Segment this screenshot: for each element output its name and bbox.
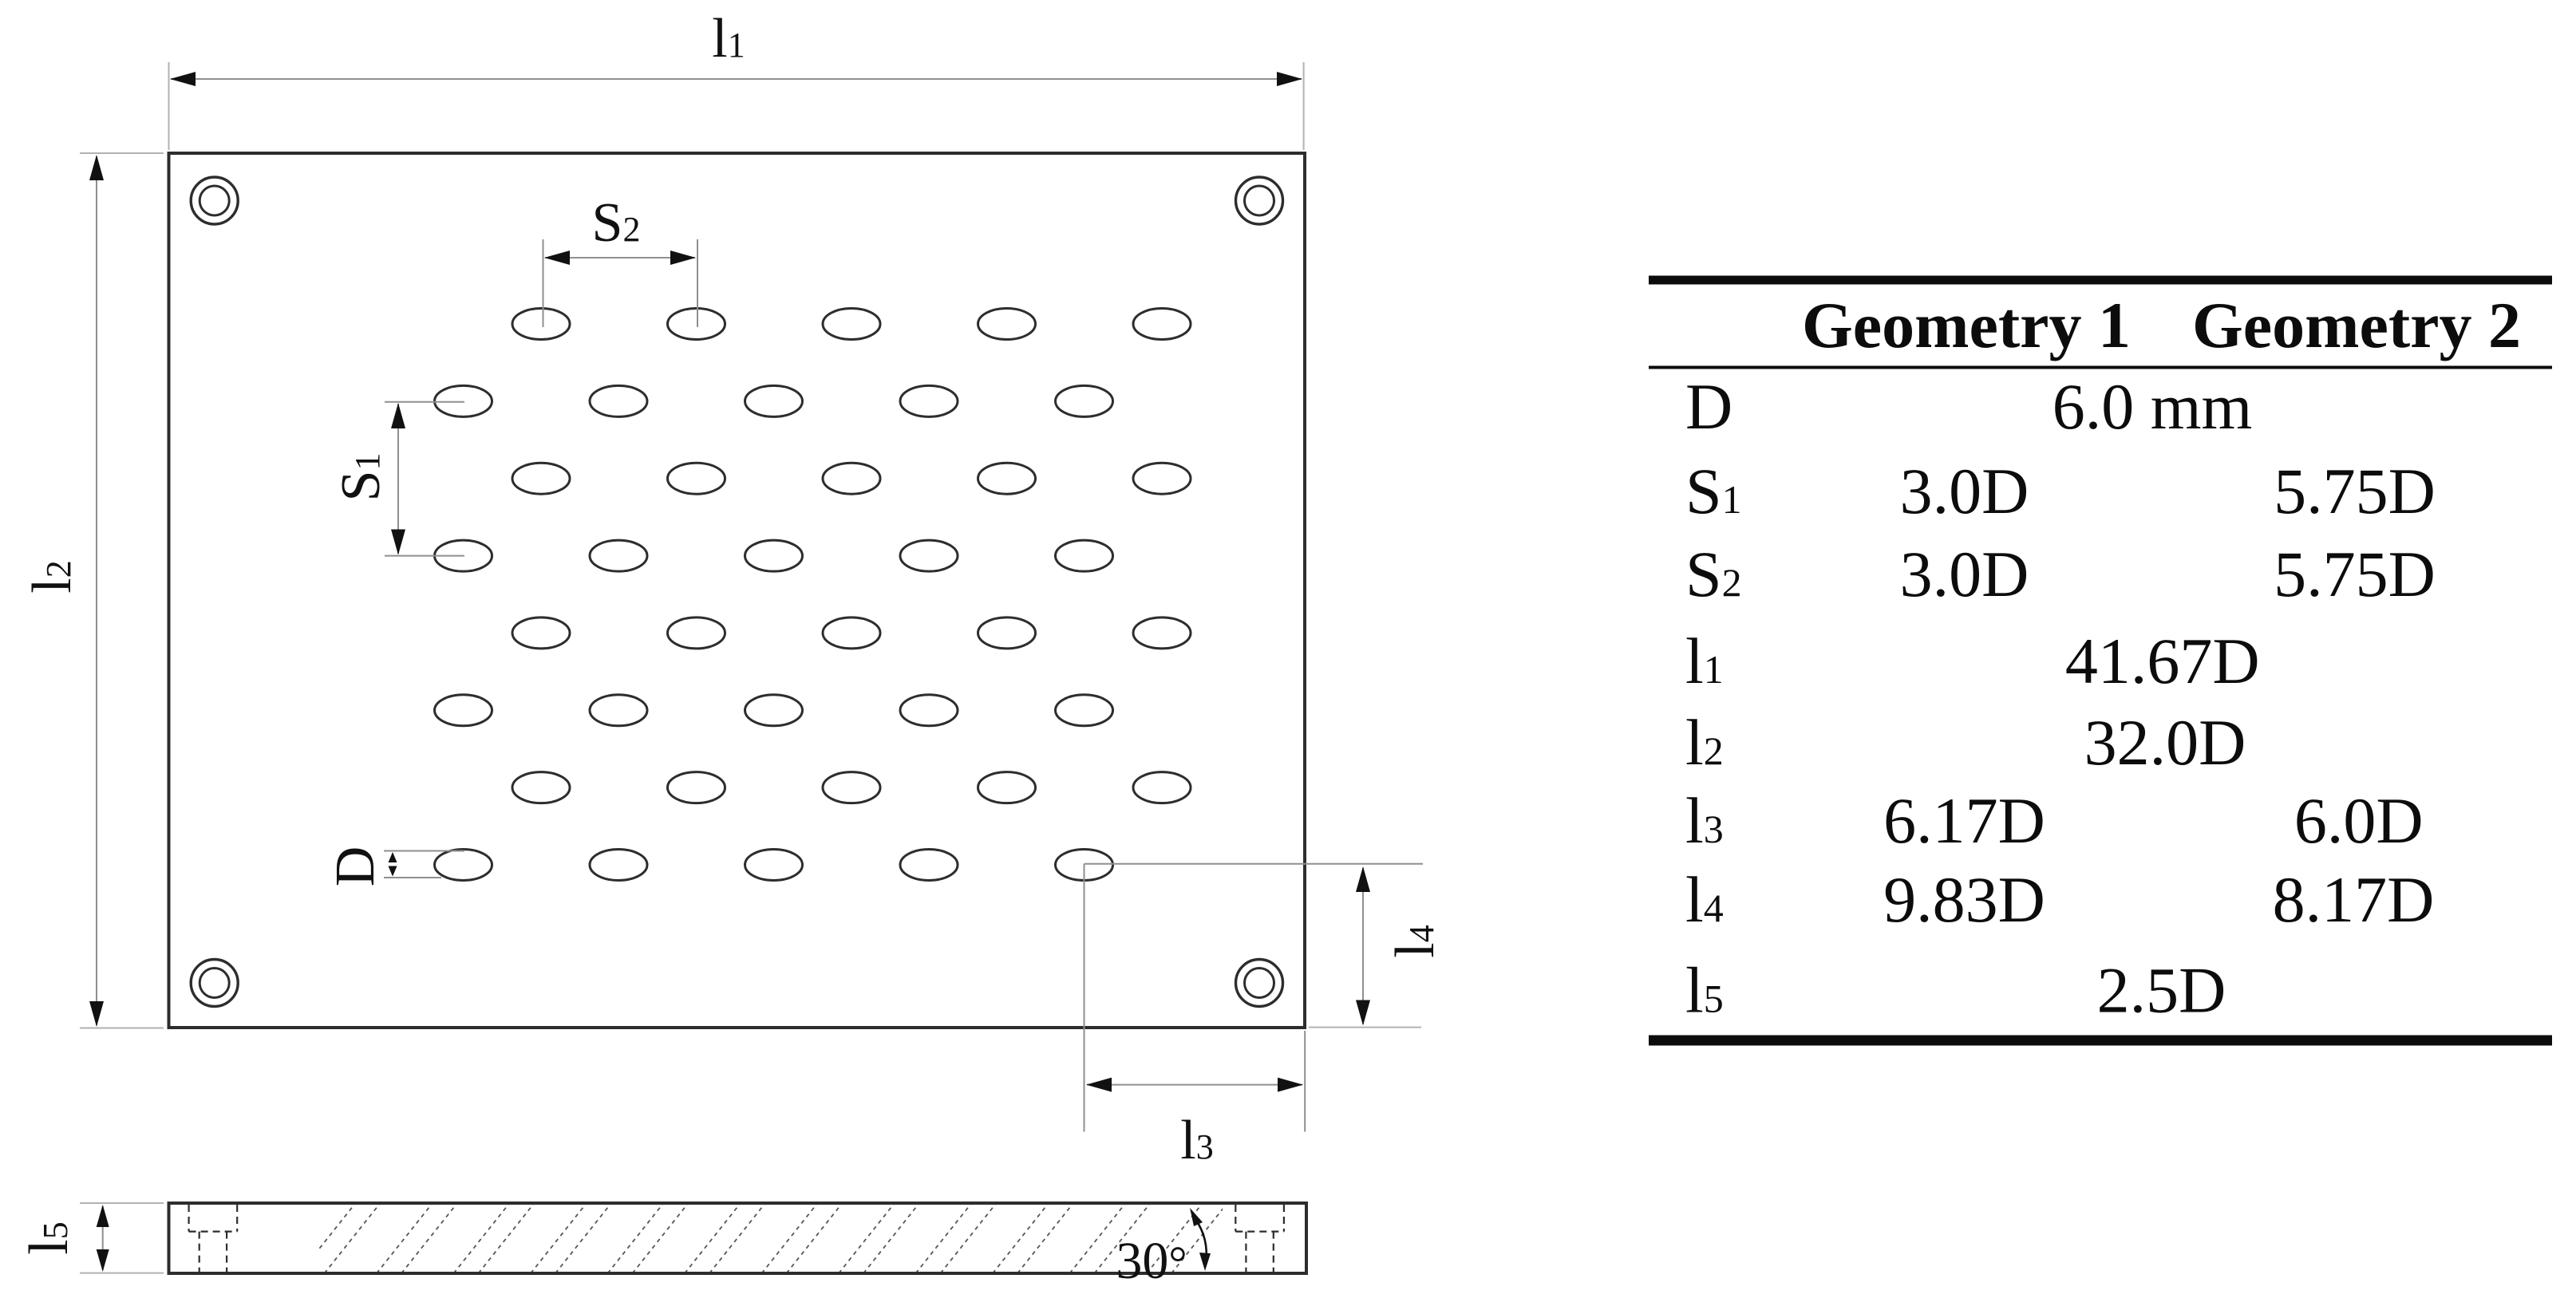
svg-text:3.0D: 3.0D [1900,455,2029,527]
svg-text:6.0 mm: 6.0 mm [2053,370,2253,443]
svg-text:Geometry 1: Geometry 1 [1802,289,2131,361]
svg-text:8.17D: 8.17D [2273,863,2435,936]
svg-text:5.75D: 5.75D [2274,538,2436,610]
svg-text:D: D [1685,370,1732,443]
svg-text:3.0D: 3.0D [1900,538,2029,610]
svg-text:30°: 30° [1116,1232,1187,1290]
svg-text:2.5D: 2.5D [2097,954,2226,1027]
svg-text:41.67D: 41.67D [2065,625,2260,697]
svg-text:6.17D: 6.17D [1883,784,2045,857]
svg-text:32.0D: 32.0D [2084,706,2246,779]
svg-text:9.83D: 9.83D [1883,863,2045,936]
svg-text:5.75D: 5.75D [2274,455,2436,527]
svg-text:Geometry 2: Geometry 2 [2192,289,2521,361]
svg-text:D: D [325,846,386,887]
svg-text:6.0D: 6.0D [2294,784,2424,857]
